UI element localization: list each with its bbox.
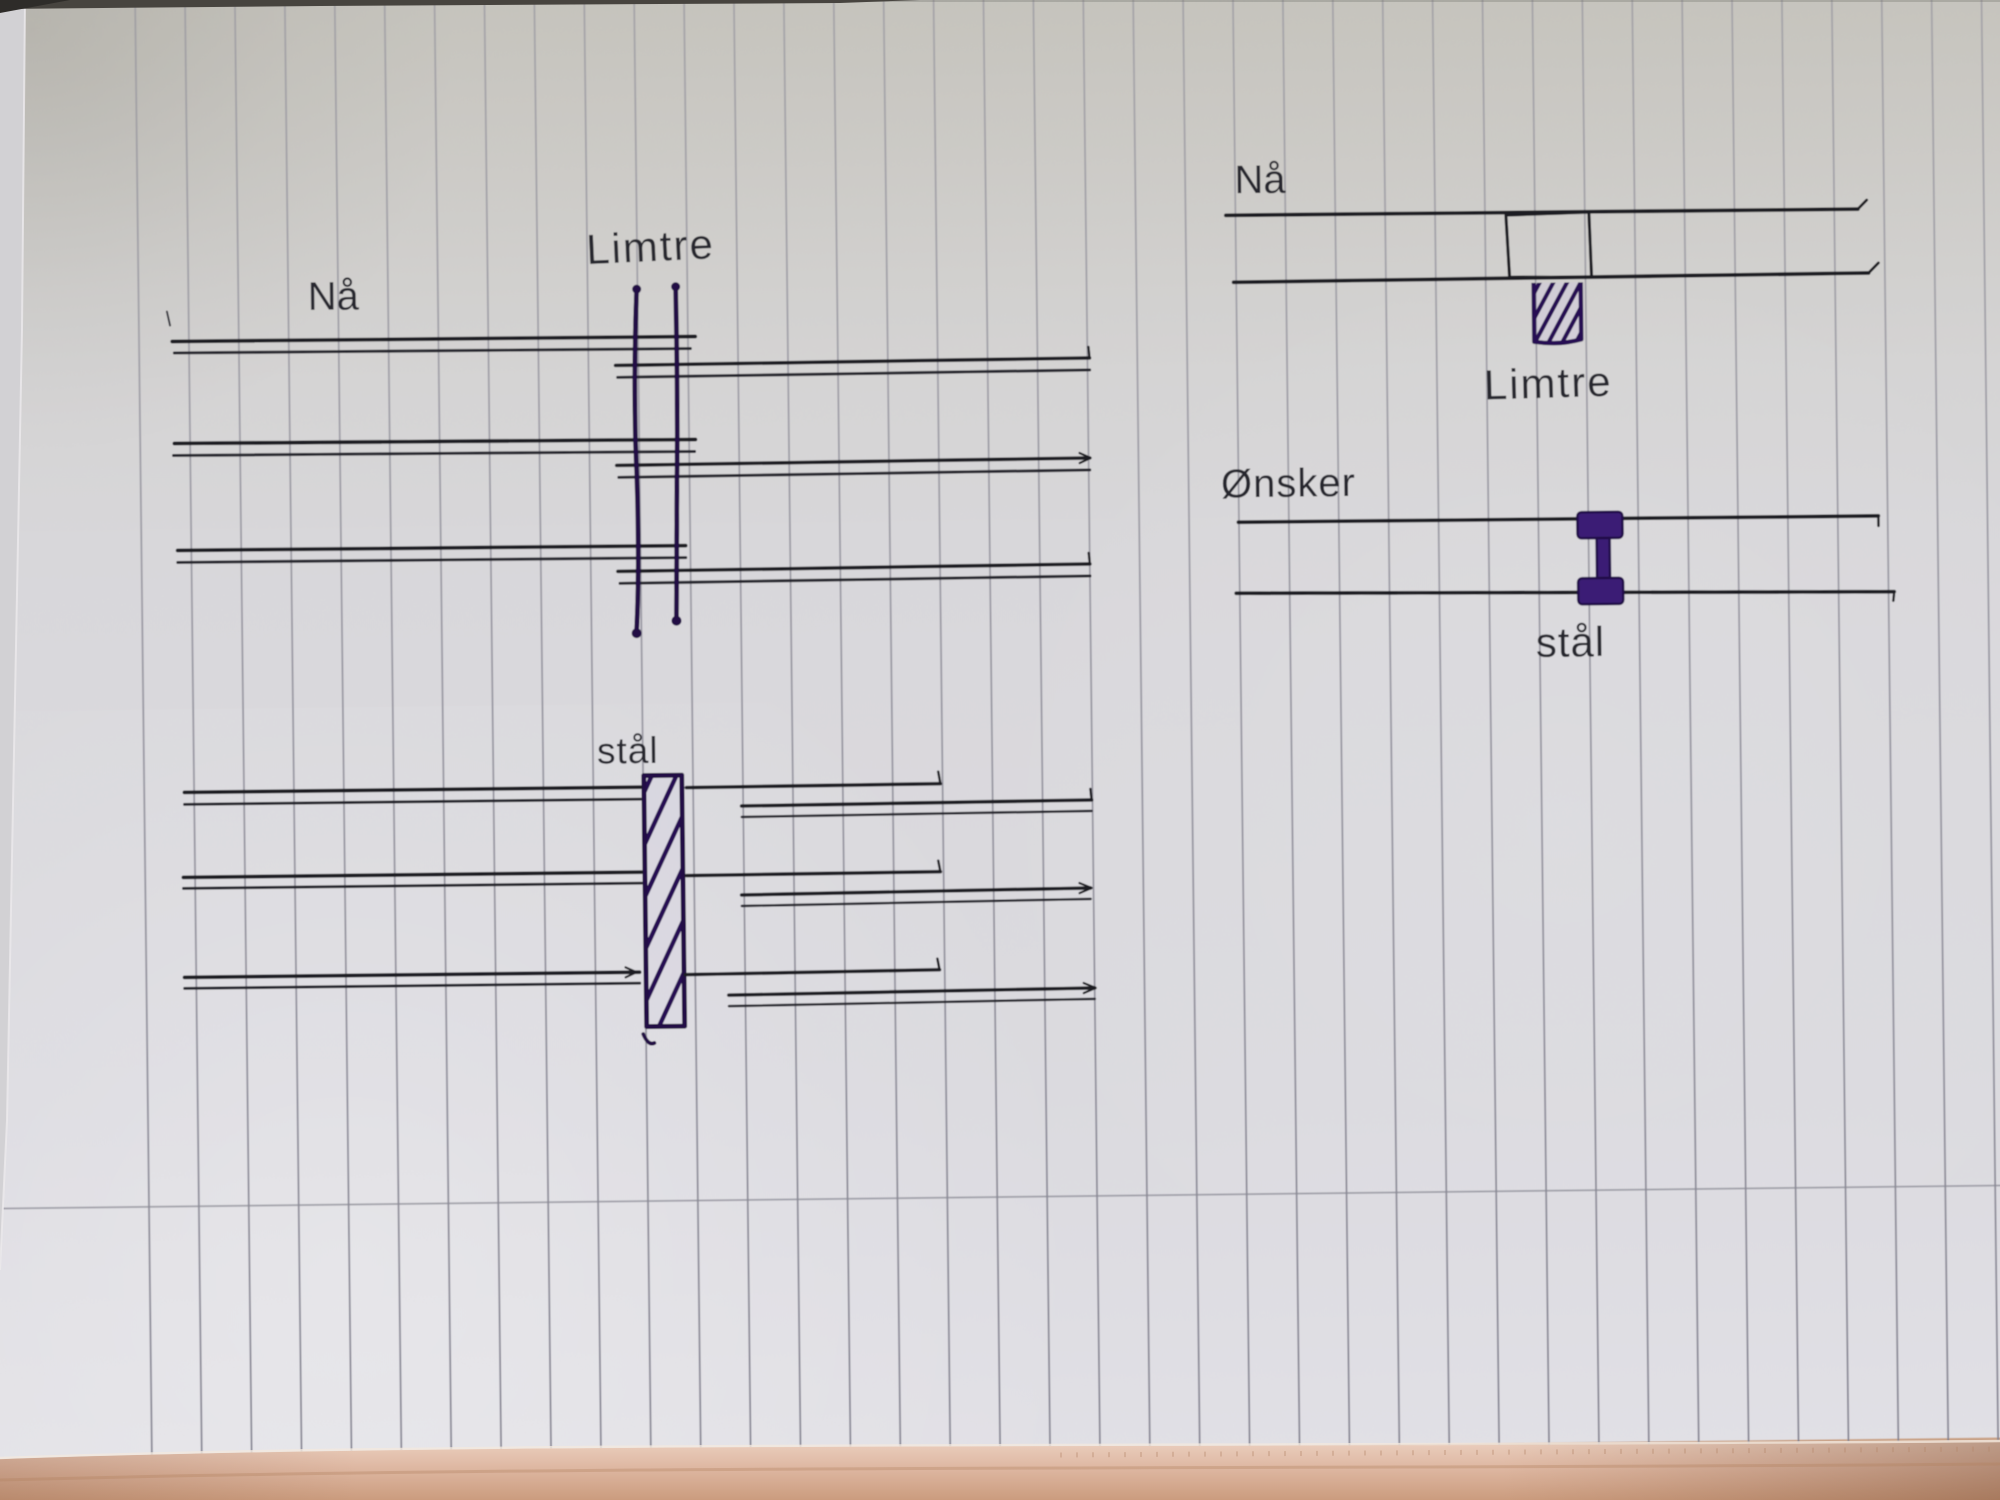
svg-text:Limtre: Limtre: [585, 220, 716, 273]
svg-text:stål: stål: [597, 730, 659, 772]
svg-text:Nå: Nå: [1234, 158, 1286, 203]
svg-text:Ønsker: Ønsker: [1221, 461, 1356, 507]
svg-text:Nå: Nå: [307, 274, 359, 319]
svg-text:Limtre: Limtre: [1483, 358, 1613, 409]
svg-text:stål: stål: [1536, 618, 1606, 666]
